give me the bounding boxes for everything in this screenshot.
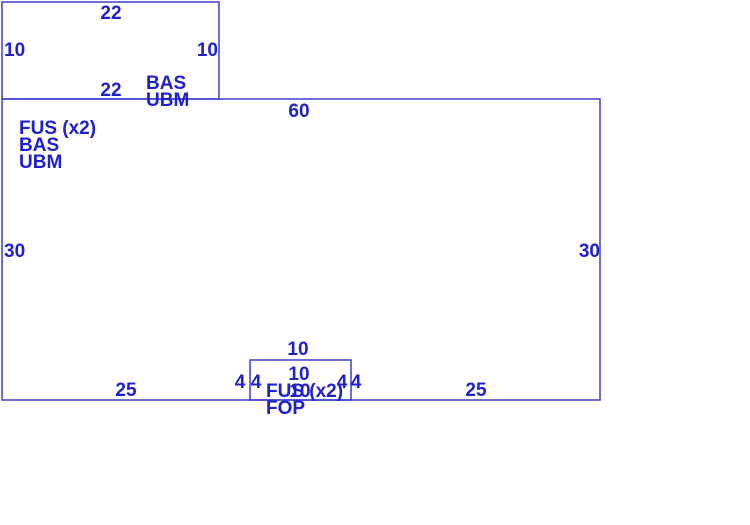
notch-rect-dim-left-outside: 4 [235,372,246,393]
main-rect-dim-left: 30 [4,241,25,262]
notch-rect-dim-left: 4 [251,372,262,393]
notch-rect-layer-2: FOP [266,398,305,419]
diagram-canvas: 22101022BASUBM60FUS (x2)BASUBM3030252510… [0,0,750,525]
upper-rect-layer-2: UBM [146,90,189,111]
main-rect-layer-3: UBM [19,152,62,173]
main-rect-dim-right: 30 [579,241,600,262]
upper-rect-dim-left: 10 [4,40,25,61]
upper-rect-dim-top: 22 [100,3,121,24]
notch-rect-dim-right-outside: 4 [351,372,362,393]
notch-rect-dim-top-outside: 10 [287,339,308,360]
main-rect-dim-top: 60 [288,101,309,122]
upper-rect-dim-bottom: 22 [100,80,121,101]
main-rect-dim-bottom-left: 25 [115,380,137,401]
upper-rect-dim-right: 10 [197,40,218,61]
main-rect-dim-bottom-right: 25 [465,380,487,401]
diagram-svg: 22101022BASUBM60FUS (x2)BASUBM3030252510… [0,0,750,525]
